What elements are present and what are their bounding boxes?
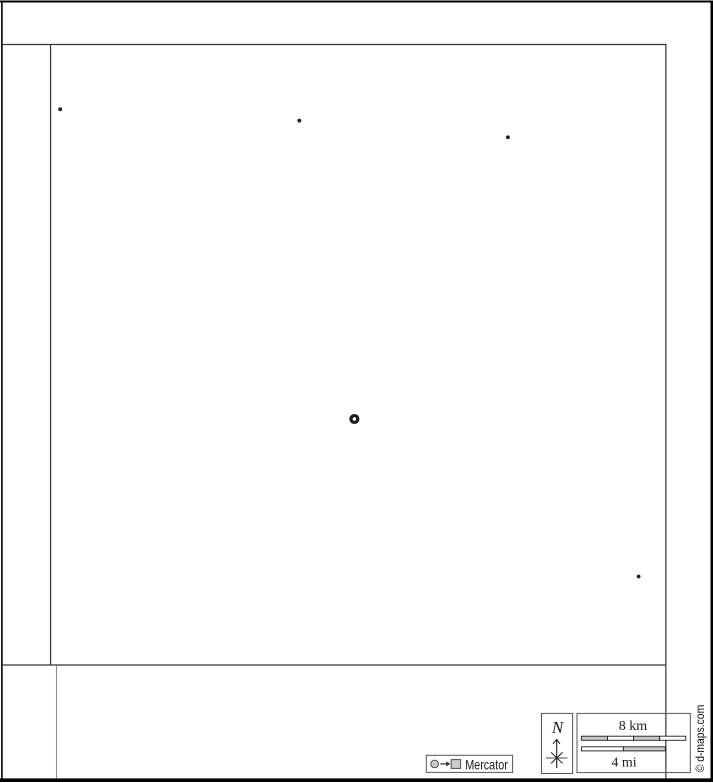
svg-text:4 mi: 4 mi (611, 755, 636, 770)
svg-text:8 km: 8 km (619, 719, 648, 734)
svg-text:Mercator: Mercator (465, 756, 508, 772)
svg-text:© d-maps.com: © d-maps.com (693, 705, 707, 773)
svg-text:N: N (551, 718, 565, 737)
